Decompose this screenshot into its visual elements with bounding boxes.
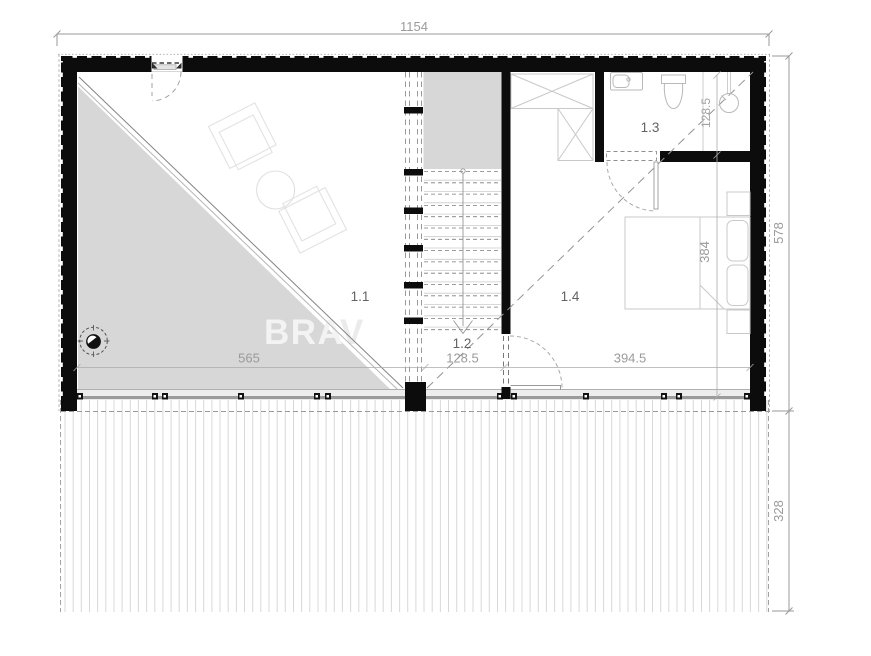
svg-text:128.5: 128.5 [699,98,713,128]
svg-text:578: 578 [771,222,786,244]
svg-text:128.5: 128.5 [446,351,479,366]
svg-text:1.1: 1.1 [351,289,370,304]
svg-text:1.2: 1.2 [453,336,472,351]
svg-text:384: 384 [697,241,712,263]
svg-text:394.5: 394.5 [614,351,647,366]
svg-text:1.3: 1.3 [641,120,660,135]
svg-text:1.4: 1.4 [561,289,580,304]
svg-text:1154: 1154 [400,19,428,34]
svg-text:565: 565 [238,351,260,366]
svg-text:BRA: BRA [264,313,344,352]
svg-text:328: 328 [771,500,786,522]
